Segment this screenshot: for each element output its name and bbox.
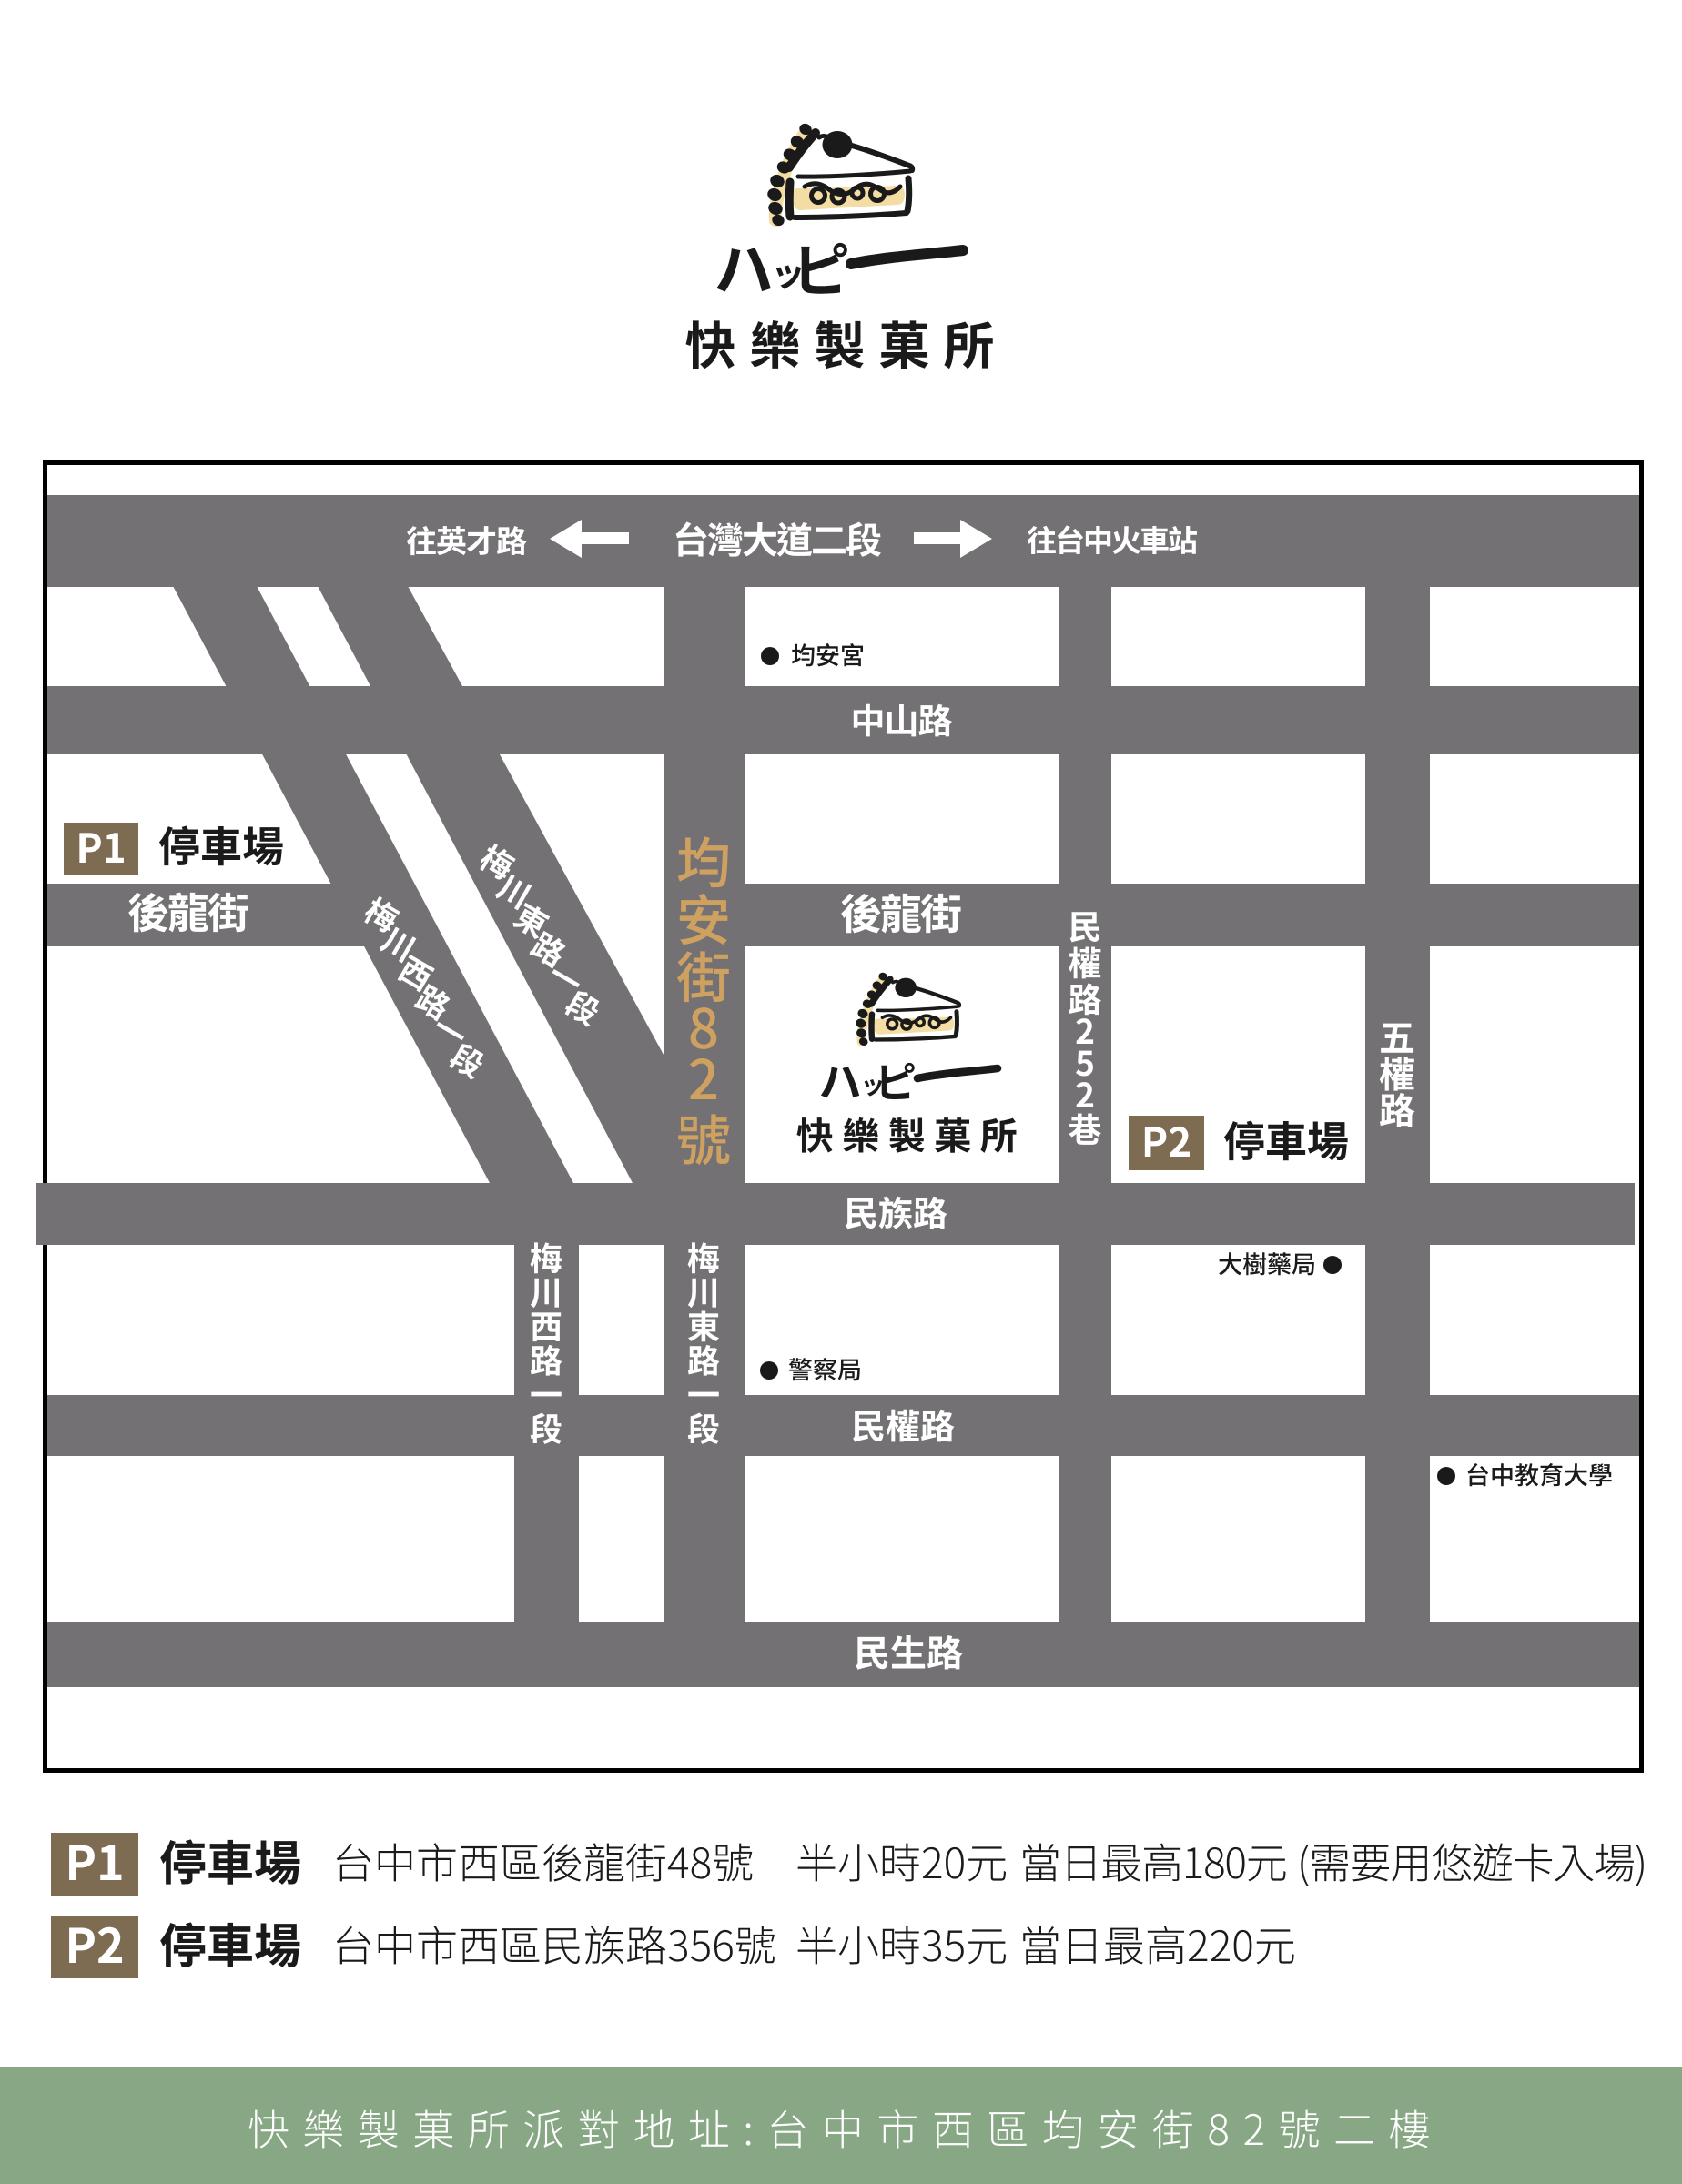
svg-text:快樂製菓所: 快樂製菓所 [796, 1106, 1027, 1160]
svg-text:ピ: ピ [875, 1050, 917, 1110]
svg-text:民生路: 民生路 [854, 1624, 963, 1677]
svg-text:民族路: 民族路 [844, 1186, 947, 1236]
svg-text:半小時35元: 半小時35元 [795, 1914, 1008, 1974]
svg-text:段: 段 [530, 1404, 562, 1451]
svg-text:P1: P1 [76, 816, 126, 875]
svg-text:中山路: 中山路 [850, 693, 952, 743]
svg-text:均安宮: 均安宮 [791, 636, 865, 672]
svg-text:台中市西區後龍街48號: 台中市西區後龍街48號 [332, 1831, 754, 1891]
svg-text:P2: P2 [65, 1908, 124, 1977]
svg-text:後龍街: 後龍街 [127, 881, 248, 941]
svg-text:停車場: 停車場 [159, 1825, 301, 1894]
svg-text:半小時20元: 半小時20元 [795, 1831, 1008, 1891]
svg-text:P2: P2 [1141, 1110, 1191, 1168]
svg-text:快樂製菓所派對地址:台中市西區均安街82號二樓: 快樂製菓所派對地址:台中市西區均安街82號二樓 [248, 2098, 1444, 2158]
svg-text:停車場: 停車場 [158, 814, 284, 875]
svg-text:ピ: ピ [792, 225, 850, 308]
svg-text:ハ: ハ [714, 222, 774, 309]
svg-text:段: 段 [687, 1404, 720, 1451]
svg-text:當日最高180元 (需要用悠遊卡入場): 當日最高180元 (需要用悠遊卡入場) [1019, 1831, 1647, 1891]
svg-text:路: 路 [1379, 1082, 1415, 1135]
svg-text:往台中火車站: 往台中火車站 [1027, 517, 1197, 561]
svg-text:大樹藥局: 大樹藥局 [1218, 1245, 1316, 1280]
svg-text:後龍街: 後龍街 [840, 882, 961, 942]
svg-text:往英才路: 往英才路 [406, 517, 527, 561]
svg-text:台中市西區民族路356號: 台中市西區民族路356號 [332, 1914, 776, 1974]
svg-text:ハ: ハ [819, 1047, 862, 1110]
svg-text:台灣大道二段: 台灣大道二段 [673, 511, 881, 564]
svg-text:民權路: 民權路 [851, 1399, 955, 1449]
svg-text:巷: 巷 [1069, 1103, 1102, 1152]
svg-text:當日最高220元: 當日最高220元 [1019, 1914, 1296, 1974]
svg-text:台中教育大學: 台中教育大學 [1465, 1456, 1613, 1491]
svg-text:警察局: 警察局 [788, 1350, 862, 1386]
svg-text:P1: P1 [65, 1825, 124, 1894]
svg-text:停車場: 停車場 [1223, 1109, 1349, 1169]
svg-text:停車場: 停車場 [159, 1908, 301, 1977]
svg-text:號: 號 [676, 1097, 731, 1177]
svg-text:快樂製菓所: 快樂製菓所 [685, 306, 1008, 379]
